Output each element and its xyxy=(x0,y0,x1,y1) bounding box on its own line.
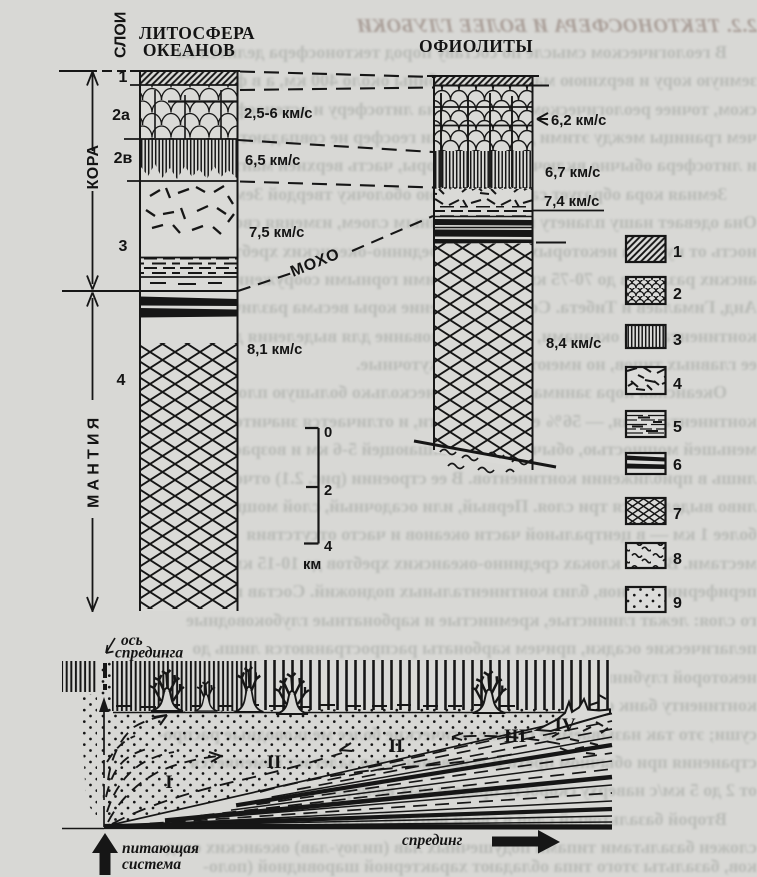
svg-text:8: 8 xyxy=(673,551,682,568)
svg-text:8,4 км/с: 8,4 км/с xyxy=(546,336,601,352)
svg-text:7,4 км/с: 7,4 км/с xyxy=(544,194,599,210)
svg-text:система: система xyxy=(122,856,181,873)
svg-text:0: 0 xyxy=(324,425,332,441)
svg-text:7,5 км/с: 7,5 км/с xyxy=(249,225,304,241)
svg-text:4: 4 xyxy=(324,539,333,555)
svg-text:IV: IV xyxy=(554,715,575,736)
svg-text:1: 1 xyxy=(119,69,128,86)
svg-text:МАНТИЯ: МАНТИЯ xyxy=(86,414,103,508)
svg-text:8,1 км/с: 8,1 км/с xyxy=(247,342,302,358)
svg-text:6: 6 xyxy=(673,457,682,474)
svg-text:6,2 км/с: 6,2 км/с xyxy=(551,113,606,129)
svg-text:6,5 км/с: 6,5 км/с xyxy=(245,153,300,169)
svg-text:6,7 км/с: 6,7 км/с xyxy=(545,165,600,181)
svg-text:2,5-6 км/с: 2,5-6 км/с xyxy=(244,106,313,122)
svg-text:2: 2 xyxy=(673,286,682,303)
svg-text:3: 3 xyxy=(119,238,128,255)
svg-text:КОРА: КОРА xyxy=(85,144,102,189)
svg-text:ОКЕАНОВ: ОКЕАНОВ xyxy=(143,40,235,60)
svg-text:5: 5 xyxy=(673,419,682,436)
svg-text:4: 4 xyxy=(673,376,682,393)
svg-text:питающая: питающая xyxy=(122,840,199,857)
svg-text:2а: 2а xyxy=(112,107,130,124)
svg-text:4: 4 xyxy=(117,372,126,389)
svg-text:ОФИОЛИТЫ: ОФИОЛИТЫ xyxy=(419,36,533,56)
svg-text:7: 7 xyxy=(673,506,682,523)
svg-text:МОХО: МОХО xyxy=(288,246,342,281)
svg-text:III: III xyxy=(504,726,526,747)
svg-text:3: 3 xyxy=(673,332,682,349)
svg-text:км: км xyxy=(303,557,321,573)
svg-text:2: 2 xyxy=(324,483,332,499)
svg-text:СЛОИ: СЛОИ xyxy=(113,12,130,58)
svg-text:II: II xyxy=(267,752,282,773)
svg-text:9: 9 xyxy=(673,595,682,612)
svg-text:2в: 2в xyxy=(114,150,133,167)
svg-text:1: 1 xyxy=(673,244,682,261)
svg-text:II: II xyxy=(389,736,404,757)
svg-text:спрединга: спрединга xyxy=(115,645,183,662)
svg-text:спрединг: спрединг xyxy=(402,832,463,849)
svg-text:I: I xyxy=(165,772,172,793)
